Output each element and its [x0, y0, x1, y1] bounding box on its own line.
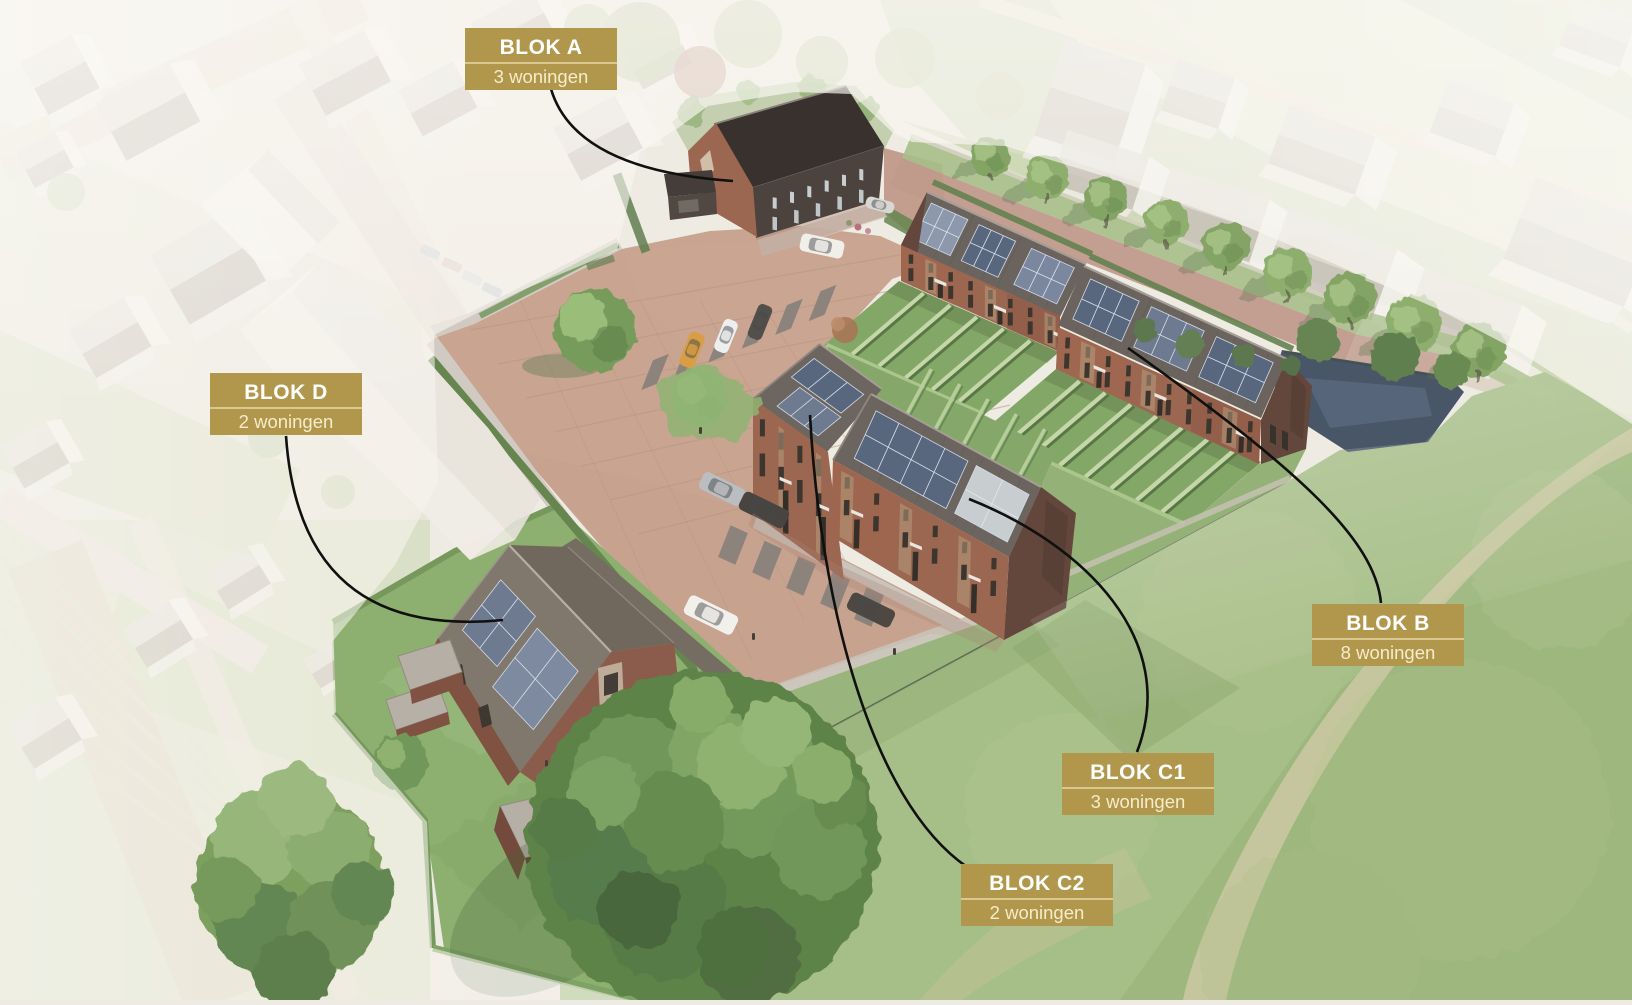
svg-text:2 woningen: 2 woningen — [239, 411, 334, 432]
svg-text:BLOK C1: BLOK C1 — [1090, 761, 1186, 784]
svg-text:BLOK B: BLOK B — [1346, 612, 1430, 635]
svg-text:BLOK D: BLOK D — [244, 381, 328, 404]
svg-text:3 woningen: 3 woningen — [494, 66, 589, 87]
svg-text:BLOK C2: BLOK C2 — [989, 872, 1085, 895]
svg-text:8 woningen: 8 woningen — [1341, 642, 1436, 663]
svg-text:3 woningen: 3 woningen — [1091, 791, 1186, 812]
svg-text:2 woningen: 2 woningen — [990, 902, 1085, 923]
svg-text:BLOK A: BLOK A — [500, 36, 583, 59]
